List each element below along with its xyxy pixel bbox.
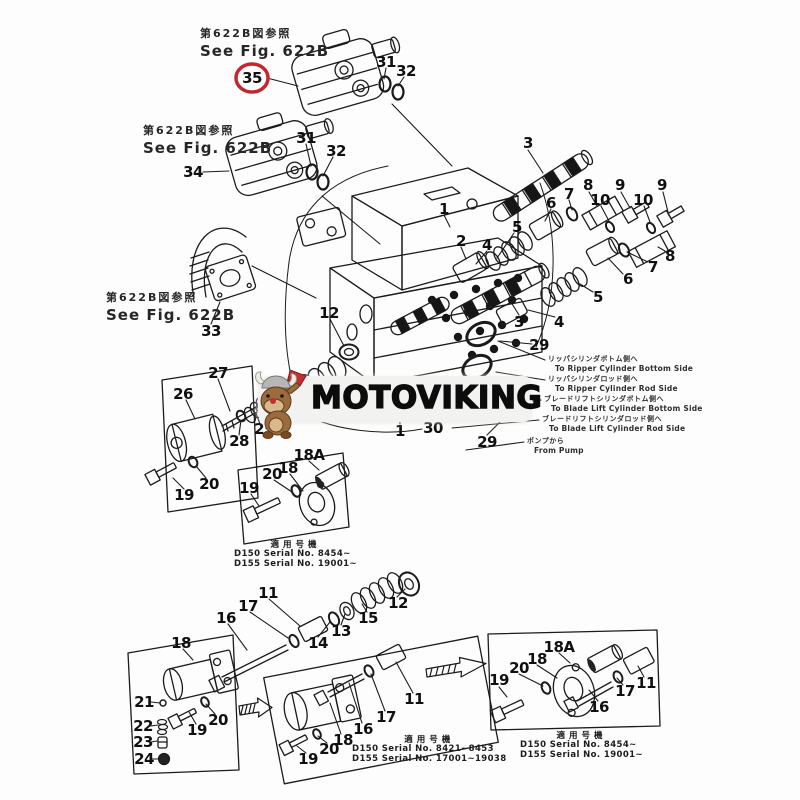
spring-5-lower bbox=[538, 265, 590, 308]
bolt-9 bbox=[622, 199, 651, 223]
spool-3 bbox=[490, 149, 594, 225]
spool-3-lower bbox=[448, 262, 551, 327]
hose-elbow-33 bbox=[190, 228, 256, 302]
spring-22 bbox=[158, 720, 168, 735]
washer-10 bbox=[645, 221, 657, 234]
sleeve-11 bbox=[298, 616, 328, 642]
sleeve-6 bbox=[585, 236, 622, 267]
spool-partial bbox=[388, 295, 451, 337]
viking-mascot-icon bbox=[250, 366, 314, 440]
washer-14 bbox=[327, 611, 341, 628]
bolt-19 bbox=[490, 697, 525, 723]
sleeve-11 bbox=[623, 647, 655, 675]
highlight-circle-35 bbox=[236, 64, 268, 92]
washer-17 bbox=[287, 633, 300, 648]
washer-20 bbox=[200, 696, 211, 708]
bolt-9 bbox=[657, 203, 686, 227]
plug-8 bbox=[582, 196, 623, 230]
bolt-19 bbox=[168, 706, 198, 729]
bolt-16-head bbox=[314, 690, 328, 705]
washer-20 bbox=[312, 728, 323, 740]
valve-cover-34 bbox=[219, 99, 345, 199]
oring-32 bbox=[393, 85, 404, 100]
replacement-arrow bbox=[239, 698, 272, 717]
washer-12-target bbox=[340, 345, 359, 360]
brand-name: MOTOVIKING bbox=[311, 380, 542, 416]
center-spool-row bbox=[209, 569, 423, 692]
valve-cover-35 bbox=[285, 16, 411, 118]
washer-10 bbox=[604, 220, 616, 233]
solenoid-18 bbox=[159, 650, 238, 705]
bolt-19 bbox=[145, 460, 178, 485]
washer-17 bbox=[363, 664, 376, 678]
subassembly-box-right bbox=[488, 630, 660, 730]
sleeve-6 bbox=[528, 209, 565, 241]
seat-13 bbox=[337, 600, 357, 622]
replacement-arrow bbox=[426, 658, 486, 678]
spring-15 bbox=[348, 570, 406, 616]
oring-31 bbox=[380, 77, 391, 92]
oring-32 bbox=[318, 175, 329, 190]
ball-21 bbox=[160, 700, 166, 706]
nut-24 bbox=[159, 754, 170, 765]
parts-diagram-page: 第622B図参照See Fig. 622B第622B図参照See Fig. 62… bbox=[0, 0, 800, 800]
pin-18a bbox=[585, 643, 624, 674]
solenoid-box-21 bbox=[128, 635, 239, 774]
oring-7 bbox=[565, 206, 580, 223]
plug-8 bbox=[628, 231, 675, 268]
washer-20 bbox=[540, 681, 552, 695]
flange-plate-18 bbox=[294, 478, 341, 531]
sleeve-11 bbox=[376, 644, 406, 670]
washer-17 bbox=[612, 670, 625, 684]
